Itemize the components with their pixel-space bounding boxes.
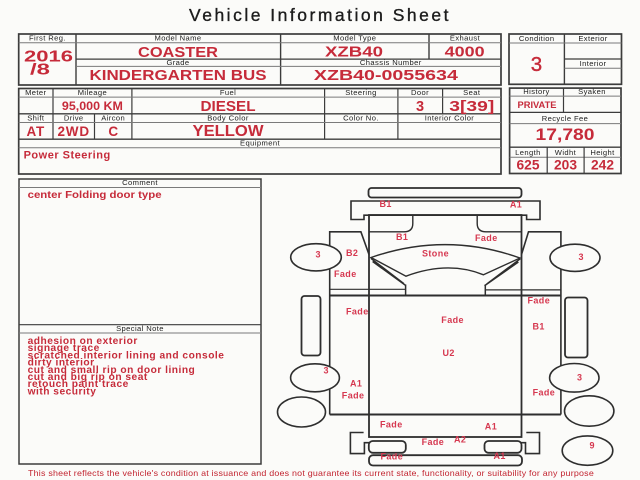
- svg-text:Model Name: Model Name: [154, 34, 201, 43]
- svg-text:Fade: Fade: [475, 233, 498, 243]
- svg-text:Fade: Fade: [381, 452, 404, 462]
- svg-text:Fade: Fade: [334, 269, 357, 279]
- svg-text:Recycle Fee: Recycle Fee: [542, 114, 589, 123]
- svg-text:A1: A1: [494, 451, 506, 461]
- svg-text:3: 3: [416, 99, 424, 115]
- svg-text:Aircon: Aircon: [101, 113, 125, 122]
- svg-text:A1: A1: [485, 422, 497, 432]
- svg-text:625: 625: [517, 158, 540, 173]
- svg-text:/8: /8: [30, 62, 51, 79]
- svg-text:Stone: Stone: [422, 249, 449, 259]
- svg-text:Exhaust: Exhaust: [450, 34, 481, 43]
- svg-text:Fade: Fade: [380, 420, 403, 430]
- svg-text:B2: B2: [346, 248, 358, 258]
- svg-text:This sheet reflects the vehicl: This sheet reflects the vehicle's condit…: [28, 469, 594, 478]
- svg-text:A1: A1: [350, 379, 362, 389]
- svg-text:Syaken: Syaken: [578, 87, 606, 96]
- svg-text:Body Color: Body Color: [207, 113, 249, 122]
- svg-text:Mileage: Mileage: [78, 88, 107, 97]
- svg-text:203: 203: [554, 158, 577, 173]
- svg-text:Seat: Seat: [463, 88, 481, 97]
- svg-text:Color No.: Color No.: [343, 113, 379, 122]
- svg-text:B1: B1: [396, 232, 408, 242]
- svg-text:First Reg.: First Reg.: [29, 34, 66, 43]
- svg-text:Meter: Meter: [25, 88, 46, 97]
- svg-text:C: C: [108, 124, 118, 139]
- svg-text:center Folding door type: center Folding door type: [28, 189, 162, 201]
- svg-text:Fade: Fade: [441, 315, 464, 325]
- svg-text:Model Type: Model Type: [333, 34, 376, 43]
- svg-text:Length: Length: [515, 148, 541, 157]
- svg-text:Steering: Steering: [345, 88, 376, 97]
- svg-text:Fade: Fade: [342, 391, 365, 401]
- svg-text:2WD: 2WD: [57, 124, 89, 139]
- svg-text:A2: A2: [454, 435, 466, 445]
- svg-text:Special Note: Special Note: [116, 324, 164, 333]
- svg-text:Interior: Interior: [580, 59, 607, 68]
- svg-text:A1: A1: [510, 200, 522, 210]
- svg-text:with security: with security: [27, 386, 97, 397]
- svg-text:Condition: Condition: [519, 34, 555, 43]
- svg-text:3: 3: [316, 250, 321, 260]
- svg-text:9: 9: [590, 441, 595, 451]
- svg-text:Interior Color: Interior Color: [425, 113, 475, 122]
- svg-text:Height: Height: [590, 148, 615, 157]
- svg-text:242: 242: [591, 158, 614, 173]
- svg-text:Fuel: Fuel: [220, 88, 236, 97]
- svg-text:Equipment: Equipment: [240, 139, 280, 148]
- svg-text:KINDERGARTEN BUS: KINDERGARTEN BUS: [90, 68, 267, 84]
- svg-text:Fade: Fade: [533, 388, 556, 398]
- svg-text:Fade: Fade: [422, 437, 445, 447]
- svg-text:Fade: Fade: [346, 307, 369, 317]
- svg-text:Power Steering: Power Steering: [24, 150, 111, 162]
- svg-text:95,000 KM: 95,000 KM: [62, 101, 123, 113]
- svg-text:Vehicle Information Sheet: Vehicle Information Sheet: [189, 5, 451, 25]
- svg-text:3: 3: [531, 53, 542, 76]
- svg-text:U2: U2: [443, 348, 455, 358]
- svg-text:XZB40-0055634: XZB40-0055634: [314, 68, 458, 84]
- svg-text:Exterior: Exterior: [578, 34, 607, 43]
- svg-text:AT: AT: [27, 124, 46, 139]
- svg-text:3: 3: [577, 373, 582, 383]
- svg-text:Chassis Number: Chassis Number: [360, 58, 422, 67]
- svg-text:Comment: Comment: [122, 178, 158, 187]
- svg-text:PRIVATE: PRIVATE: [518, 100, 557, 111]
- svg-text:Fade: Fade: [528, 296, 551, 306]
- svg-text:Grade: Grade: [166, 58, 189, 67]
- svg-text:History: History: [523, 87, 549, 96]
- svg-text:Widht: Widht: [555, 148, 577, 157]
- svg-text:3: 3: [579, 252, 584, 262]
- svg-text:B1: B1: [380, 199, 392, 209]
- svg-text:3: 3: [324, 366, 329, 376]
- svg-text:Door: Door: [411, 88, 429, 97]
- svg-text:17,780: 17,780: [536, 125, 595, 144]
- svg-text:Shift: Shift: [27, 113, 45, 122]
- svg-text:B1: B1: [533, 322, 545, 332]
- svg-text:Drive: Drive: [64, 113, 84, 122]
- svg-text:4000: 4000: [445, 45, 485, 61]
